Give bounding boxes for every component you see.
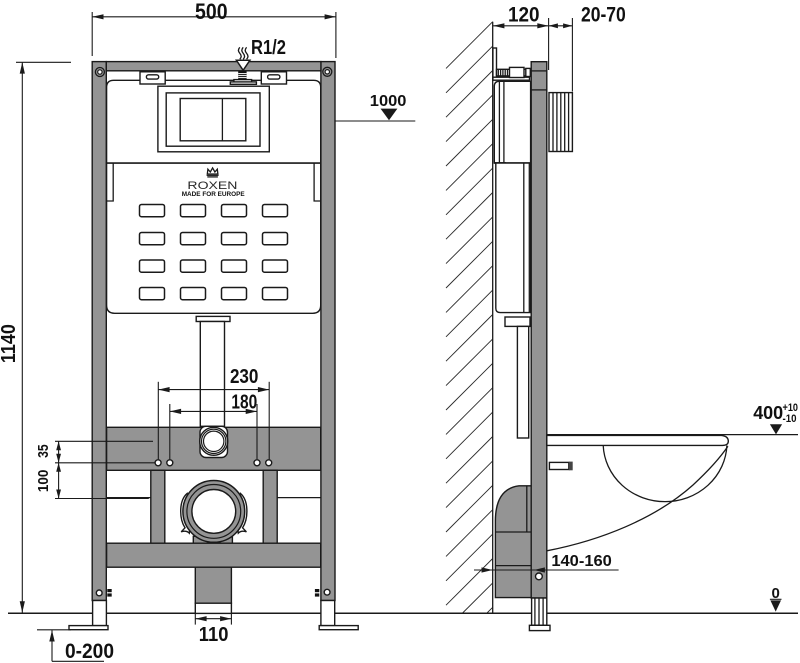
svg-text:35: 35	[36, 444, 52, 458]
svg-text:400: 400	[753, 402, 783, 423]
svg-text:R1/2: R1/2	[251, 36, 286, 59]
svg-text:500: 500	[195, 0, 228, 24]
svg-text:-10: -10	[783, 413, 797, 425]
svg-text:100: 100	[36, 470, 52, 493]
svg-text:20-70: 20-70	[581, 4, 626, 27]
svg-text:230: 230	[230, 365, 259, 388]
svg-text:180: 180	[231, 391, 257, 414]
svg-text:1000: 1000	[370, 93, 407, 110]
svg-text:0-200: 0-200	[65, 640, 114, 663]
svg-text:ROXEN: ROXEN	[187, 180, 237, 192]
svg-text:1140: 1140	[0, 324, 20, 363]
svg-text:120: 120	[508, 4, 540, 27]
svg-text:140-160: 140-160	[551, 553, 612, 570]
svg-text:MADE FOR EUROPE: MADE FOR EUROPE	[182, 191, 246, 198]
svg-text:110: 110	[199, 624, 229, 646]
